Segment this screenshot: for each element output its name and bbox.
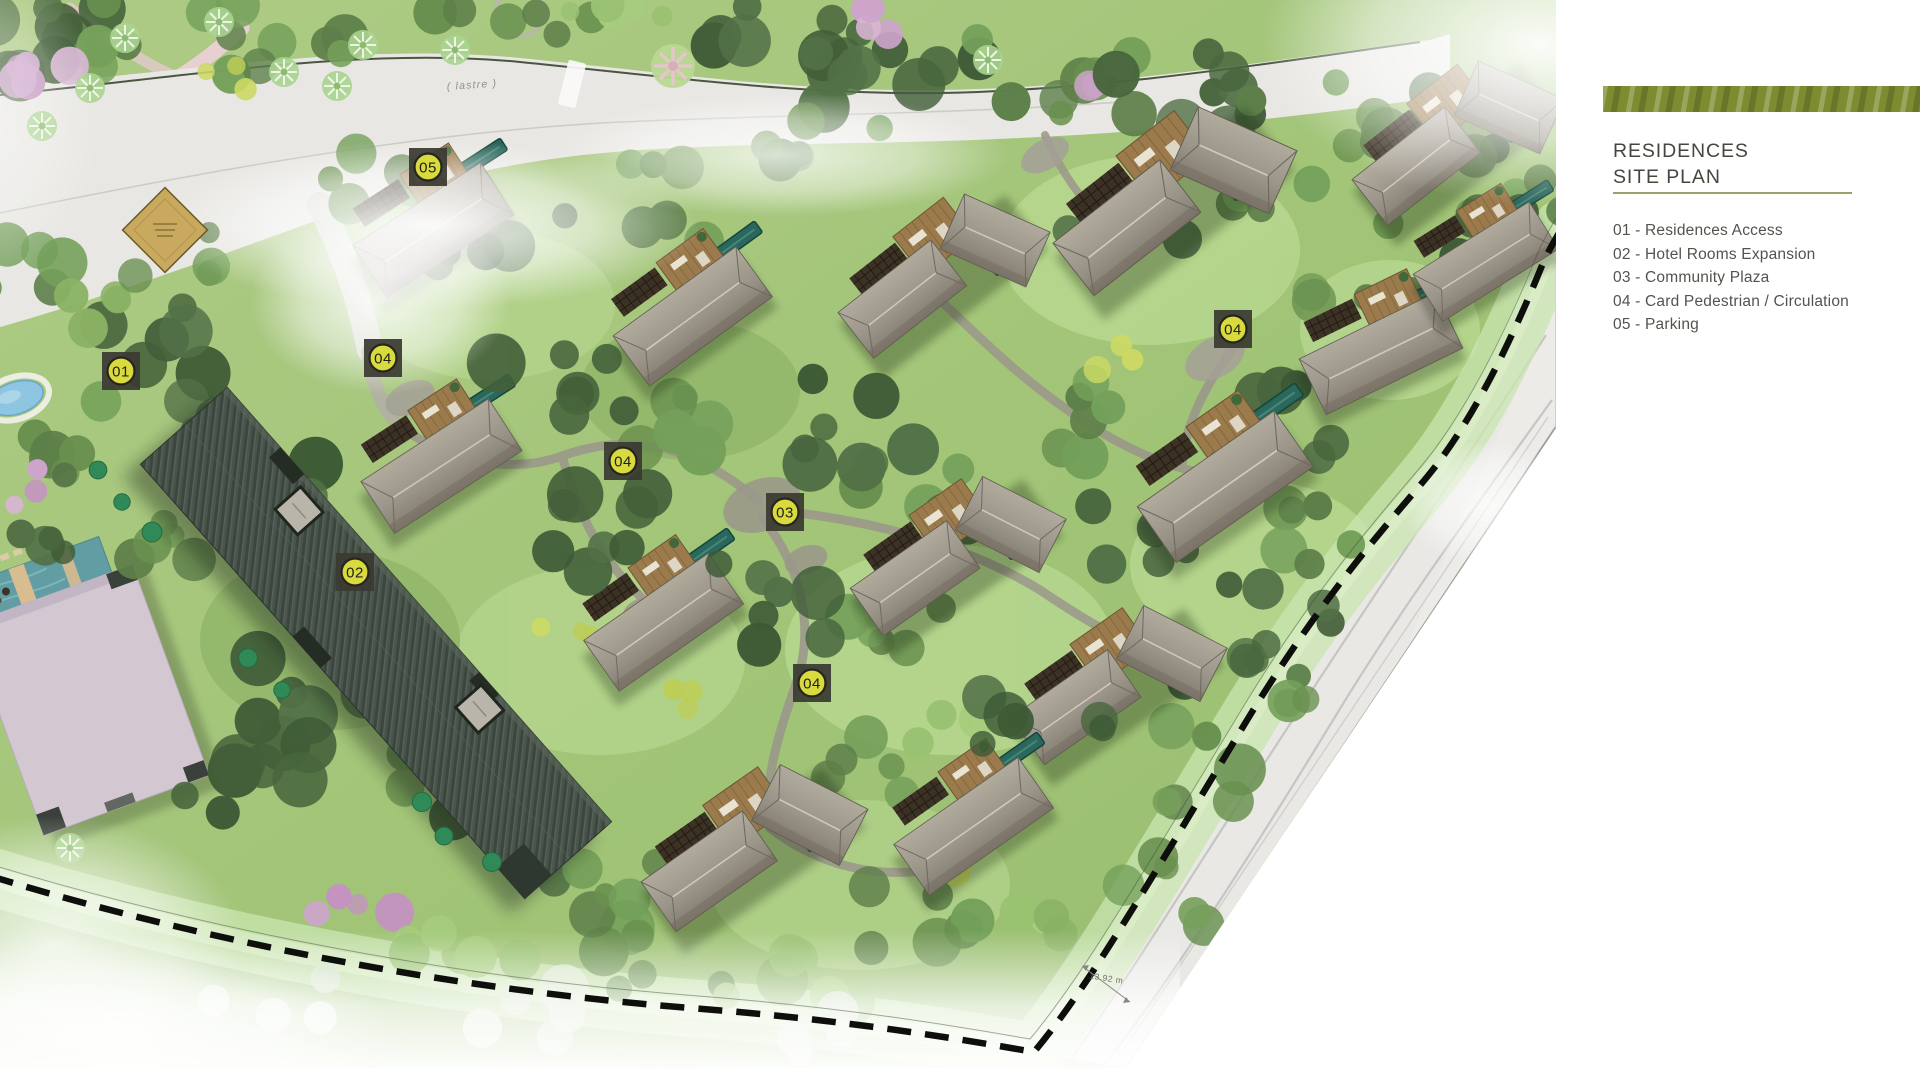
tree — [610, 396, 639, 425]
svg-text:04: 04 — [614, 454, 632, 471]
svg-text:05: 05 — [419, 160, 437, 177]
tree — [347, 894, 368, 915]
shrub — [114, 494, 130, 510]
tree — [118, 258, 153, 293]
tree — [304, 901, 330, 927]
tree — [791, 435, 819, 463]
tree — [54, 278, 89, 313]
tree — [849, 866, 890, 907]
flower-tree — [322, 71, 352, 101]
tree — [799, 37, 833, 71]
tree — [680, 680, 703, 703]
tree — [25, 480, 48, 503]
tree — [592, 344, 622, 374]
tree — [1049, 101, 1074, 126]
marker-01: 01 — [102, 352, 140, 390]
marker-05: 05 — [409, 148, 447, 186]
tree — [837, 443, 886, 492]
tree — [198, 63, 215, 80]
svg-text:04: 04 — [803, 676, 821, 693]
flower-tree — [348, 30, 378, 60]
legend-item: 02 - Hotel Rooms Expansion — [1613, 243, 1849, 267]
tree — [1236, 85, 1267, 116]
tree — [798, 364, 828, 394]
marker-04: 04 — [604, 442, 642, 480]
tree — [1089, 715, 1115, 741]
tree — [705, 550, 732, 577]
tree — [1209, 51, 1249, 91]
tree — [836, 46, 881, 91]
tree — [672, 385, 698, 411]
olive-banner — [1603, 86, 1920, 112]
tree — [532, 530, 574, 572]
shrub — [274, 682, 290, 698]
tree — [853, 373, 899, 419]
tree — [548, 489, 580, 521]
tree — [171, 782, 199, 810]
tree — [206, 796, 240, 830]
svg-text:04: 04 — [374, 351, 392, 368]
tree — [810, 414, 837, 441]
tree — [490, 3, 526, 39]
tree — [561, 2, 580, 21]
flower-tree — [110, 23, 140, 53]
tree — [902, 727, 933, 758]
tree — [609, 530, 644, 565]
shrub — [412, 792, 431, 811]
tree — [1242, 568, 1283, 609]
tree — [1294, 549, 1324, 579]
title-underline — [1613, 192, 1852, 194]
tree — [1294, 166, 1331, 203]
tree — [1213, 781, 1254, 822]
shrub — [435, 827, 453, 845]
flower-tree — [440, 35, 470, 65]
tree — [549, 395, 589, 435]
tree — [52, 463, 77, 488]
tree — [1000, 893, 1038, 931]
shrub — [142, 522, 162, 542]
tree — [887, 423, 939, 475]
page-title: RESIDENCES SITE PLAN — [1613, 138, 1749, 190]
tree — [234, 78, 256, 100]
tree — [550, 340, 579, 369]
tree — [1230, 644, 1264, 678]
shrub — [89, 461, 107, 479]
tree — [1216, 572, 1242, 598]
tree — [39, 526, 63, 550]
tree — [1192, 722, 1221, 751]
svg-text:03: 03 — [776, 505, 794, 522]
flower-tree — [269, 57, 299, 87]
marker-03: 03 — [766, 493, 804, 531]
tree — [272, 752, 327, 807]
tree — [826, 744, 858, 776]
tree — [544, 21, 571, 48]
tree — [918, 46, 959, 87]
flower-tree — [204, 7, 234, 37]
legend-list: 01 - Residences Access02 - Hotel Rooms E… — [1613, 219, 1849, 337]
tree — [1075, 488, 1111, 524]
tree — [927, 700, 957, 730]
tree — [5, 496, 23, 514]
tree — [1062, 433, 1108, 479]
tree — [227, 57, 245, 75]
tree — [573, 623, 590, 640]
tree — [1292, 686, 1319, 713]
legend-sidebar: RESIDENCES SITE PLAN 01 - Residences Acc… — [1556, 0, 1920, 1068]
tree — [749, 601, 779, 631]
tree — [719, 15, 771, 67]
flower-tree — [651, 44, 695, 88]
tree — [1093, 51, 1140, 98]
tree — [970, 731, 996, 757]
tree — [1178, 897, 1210, 929]
legend-item: 04 - Card Pedestrian / Circulation — [1613, 290, 1849, 314]
tree — [1103, 865, 1144, 906]
marker-04: 04 — [364, 339, 402, 377]
legend-item: 01 - Residences Access — [1613, 219, 1849, 243]
residences-site-plan-page: 13.92 m ( lastre ) 0501040403020404 RESI… — [0, 0, 1920, 1068]
tree — [805, 618, 844, 657]
marker-02: 02 — [336, 553, 374, 591]
tree — [522, 0, 550, 27]
svg-text:04: 04 — [1224, 322, 1242, 339]
tree — [984, 692, 1029, 737]
tree — [676, 426, 726, 476]
tree — [1034, 899, 1069, 934]
marker-04: 04 — [1214, 310, 1252, 348]
shrub — [483, 853, 502, 872]
tree — [211, 734, 266, 789]
legend-item: 05 - Parking — [1613, 313, 1849, 337]
tree — [791, 566, 845, 620]
tree — [1153, 787, 1182, 816]
marker-04: 04 — [793, 664, 831, 702]
flower-tree — [973, 45, 1003, 75]
plan-graphic: 13.92 m ( lastre ) — [0, 0, 1820, 1068]
tree — [1087, 544, 1126, 583]
shrub — [239, 649, 258, 668]
tree — [159, 305, 213, 359]
title-line-1: RESIDENCES — [1613, 138, 1749, 164]
title-line-2: SITE PLAN — [1613, 164, 1749, 190]
tree — [68, 308, 108, 348]
svg-text:01: 01 — [112, 364, 130, 381]
tree — [1110, 334, 1132, 356]
tree — [745, 560, 780, 595]
tree — [652, 6, 673, 27]
tree — [878, 753, 904, 779]
tree — [27, 459, 47, 479]
tree — [817, 5, 848, 36]
svg-text:02: 02 — [346, 565, 364, 582]
tree — [531, 618, 550, 637]
tree — [1313, 425, 1349, 461]
tree — [1084, 356, 1111, 383]
tree — [1303, 491, 1332, 520]
legend-item: 03 - Community Plaza — [1613, 266, 1849, 290]
tree — [992, 82, 1031, 121]
